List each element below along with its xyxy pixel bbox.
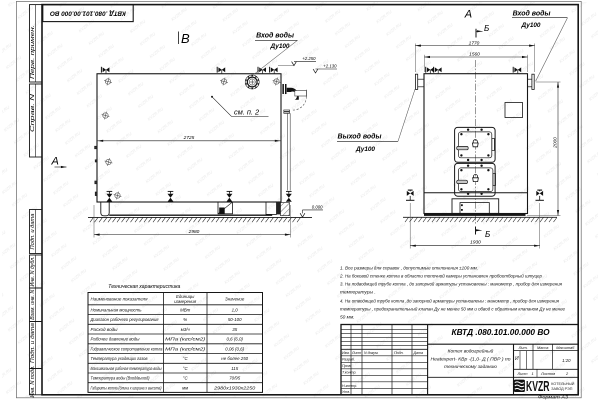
svg-text:Подп. и дата: Подп. и дата [30,323,36,363]
svg-text:Масштаб: Масштаб [556,345,575,350]
svg-text:°С: °С [183,376,189,381]
svg-text:МПа (кгс/см2): МПа (кгс/см2) [165,347,206,352]
svg-text:Вход воды: Вход воды [256,32,294,40]
svg-text:Габариты котла (длина х ширина: Габариты котла (длина х ширина х высота) [91,386,162,391]
svg-text:2980: 2980 [188,229,200,235]
svg-text:1: 1 [532,371,534,376]
svg-text:1770: 1770 [469,40,480,46]
svg-text:0,06 (0,6): 0,06 (0,6) [225,347,244,352]
svg-text:1930: 1930 [470,240,481,246]
svg-text:Дата: Дата [413,351,423,355]
svg-text:Значение: Значение [225,297,245,302]
svg-text:1. Все размеры для справок ,: 1. Все размеры для справок , допустимые … [340,265,478,271]
svg-text:1,0: 1,0 [232,307,239,312]
svg-text:Диапазон рабочего регулировани: Диапазон рабочего регулирования [90,317,160,322]
svg-text:0,6 (6,0): 0,6 (6,0) [227,337,244,342]
svg-text:КВТД .080.101.00.000 ВО: КВТД .080.101.00.000 ВО [452,327,550,337]
svg-text:Т.контр.: Т.контр. [342,371,357,375]
svg-text:Расход воды: Расход воды [91,327,119,332]
svg-text:Максимальная рабочая температу: Максимальная рабочая температура воды [91,366,163,371]
svg-text:мм: мм [182,386,188,391]
svg-text:И: И [515,356,519,362]
svg-text:В: В [181,31,190,46]
svg-text:2980х1930х2250: 2980х1930х2250 [213,386,256,391]
svg-text:Рабочее давление воды: Рабочее давление воды [91,337,141,342]
svg-text:KVZR: KVZR [526,379,550,395]
svg-text:Утв.: Утв. [342,390,350,394]
svg-text:Лист: Лист [517,371,529,376]
svg-text:70/95: 70/95 [229,376,241,381]
svg-text:Вход воды: Вход воды [513,9,551,17]
svg-text:Подп. и дата: Подп. и дата [30,213,36,249]
svg-text:Н.контр.: Н.контр. [342,384,357,388]
svg-text:КВТД .080.101.00.000 ВО: КВТД .080.101.00.000 ВО [50,10,126,17]
svg-text:Лит.: Лит. [518,345,528,350]
svg-text:Формат А3: Формат А3 [538,395,569,400]
svg-text:Ду100: Ду100 [355,146,375,153]
svg-text:3. На подводящей трубе котла: 3. На подводящей трубе котла , до запорн… [340,280,562,287]
svg-text:Разраб.: Разраб. [342,358,355,362]
svg-text:%: % [183,317,187,322]
svg-text:Номинальная мощность: Номинальная мощность [91,307,143,312]
svg-text:А: А [51,156,59,168]
svg-text:N докум.: N докум. [364,351,379,355]
svg-text:2. На боковой стенке котла в: 2. На боковой стенке котла в области топ… [339,272,542,279]
svg-text:2000: 2000 [552,137,558,149]
svg-text:°С: °С [183,366,189,371]
svg-text:ЗАВОД РЭП: ЗАВОД РЭП [551,387,572,391]
svg-text:50-100: 50-100 [228,317,242,322]
svg-text:температуры , предохранительн: температуры , предохранительный клапан Д… [340,306,565,313]
svg-text:МПа (кгс/см2): МПа (кгс/см2) [165,337,206,342]
svg-text:+2.250: +2.250 [302,56,316,61]
svg-text:Листов: Листов [540,371,555,376]
svg-text:Справ. N: Справ. N [30,94,36,132]
svg-text:Котел водогрейный: Котел водогрейный [448,348,494,355]
svg-text:Выход воды: Выход воды [338,132,382,140]
svg-text:Изм.: Изм. [342,351,350,355]
svg-text:Температура воды (Вход/выход): Температура воды (Вход/выход) [91,376,150,381]
svg-text:Б: Б [484,24,489,33]
svg-text:0.000: 0.000 [312,204,323,209]
svg-text:4. На отводящей трубе котла ,: 4. На отводящей трубе котла ,до запорной… [340,298,559,305]
svg-text:1:20: 1:20 [562,358,571,363]
svg-text:Наименование показателя: Наименование показателя [91,296,149,301]
svg-text:Техническая характеристика: Техническая характеристика [108,284,180,290]
svg-text:измерения: измерения [174,299,197,304]
svg-text:Масса: Масса [537,345,549,350]
svg-text:Инв. N дубл.: Инв. N дубл. [30,257,36,287]
svg-text:А: А [464,8,472,20]
svg-text:+2.130: +2.130 [323,63,337,68]
svg-text:Гидравлическое сопротивление к: Гидравлическое сопротивление котла [91,347,163,352]
svg-text:Б: Б [485,230,490,239]
svg-text:м3/ч: м3/ч [181,327,191,332]
svg-text:35: 35 [232,327,237,332]
svg-text:не более 250: не более 250 [221,356,248,361]
svg-text:Heatexpert- КВр -(1,0- Д ( ПВР: Heatexpert- КВр -(1,0- Д ( ПВР ) по [431,357,511,363]
svg-text:см. п. 2: см. п. 2 [234,108,259,117]
svg-text:Подп.: Подп. [394,351,404,355]
svg-text:Пров.: Пров. [342,364,351,368]
svg-text:Лист: Лист [351,351,361,355]
svg-text:Ду100: Ду100 [521,22,541,29]
svg-text:КОТЕЛЬНЫЙ: КОТЕЛЬНЫЙ [551,382,574,386]
svg-text:Инв. N подл.: Инв. N подл. [30,366,36,398]
svg-text:МВт: МВт [180,307,191,312]
svg-text:°С: °С [183,356,189,361]
svg-text:техническому заданию: техническому заданию [444,364,497,370]
svg-text:температуры .: температуры . [340,290,376,295]
svg-text:Перв. примен.: Перв. примен. [30,25,36,79]
svg-text:115: 115 [231,366,239,371]
svg-text:1560: 1560 [469,52,480,58]
svg-text:Взам. инв. N: Взам. инв. N [30,290,36,320]
svg-text:2725: 2725 [183,135,195,141]
svg-text:Температура уходящих газов: Температура уходящих газов [91,356,149,361]
svg-text:50 мм.: 50 мм. [340,314,355,320]
